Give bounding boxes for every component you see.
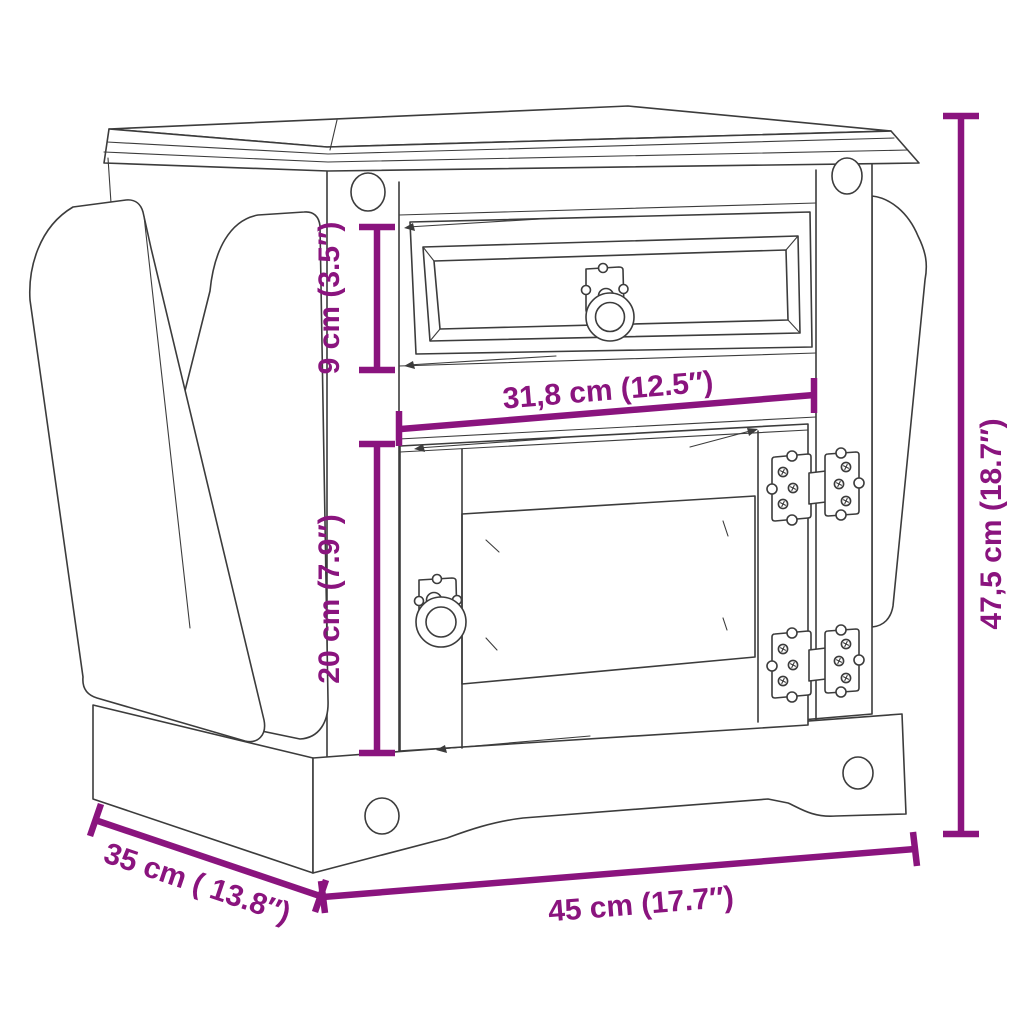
- frame-peg-right: [832, 158, 862, 194]
- base-peg-right: [843, 757, 873, 789]
- dimension-label-overall-height: 47,5 cm (18.7″): [977, 418, 1007, 629]
- dimension-line-overall-height: [943, 116, 979, 834]
- side-wing-panel: [872, 196, 926, 627]
- dimension-label-drawer-height: 9 cm (3.5″): [315, 222, 345, 375]
- base-peg-left: [365, 798, 399, 834]
- dimension-diagram: 9 cm (3.5″) 31,8 cm (12.5″) 20 cm (7.9″)…: [0, 0, 1024, 1024]
- dimension-label-door-height: 20 cm (7.9″): [315, 514, 345, 683]
- drawer-front: [410, 212, 812, 354]
- magazine-rack: [30, 200, 328, 742]
- cabinet-door: [400, 424, 864, 751]
- frame-peg-left: [351, 173, 385, 211]
